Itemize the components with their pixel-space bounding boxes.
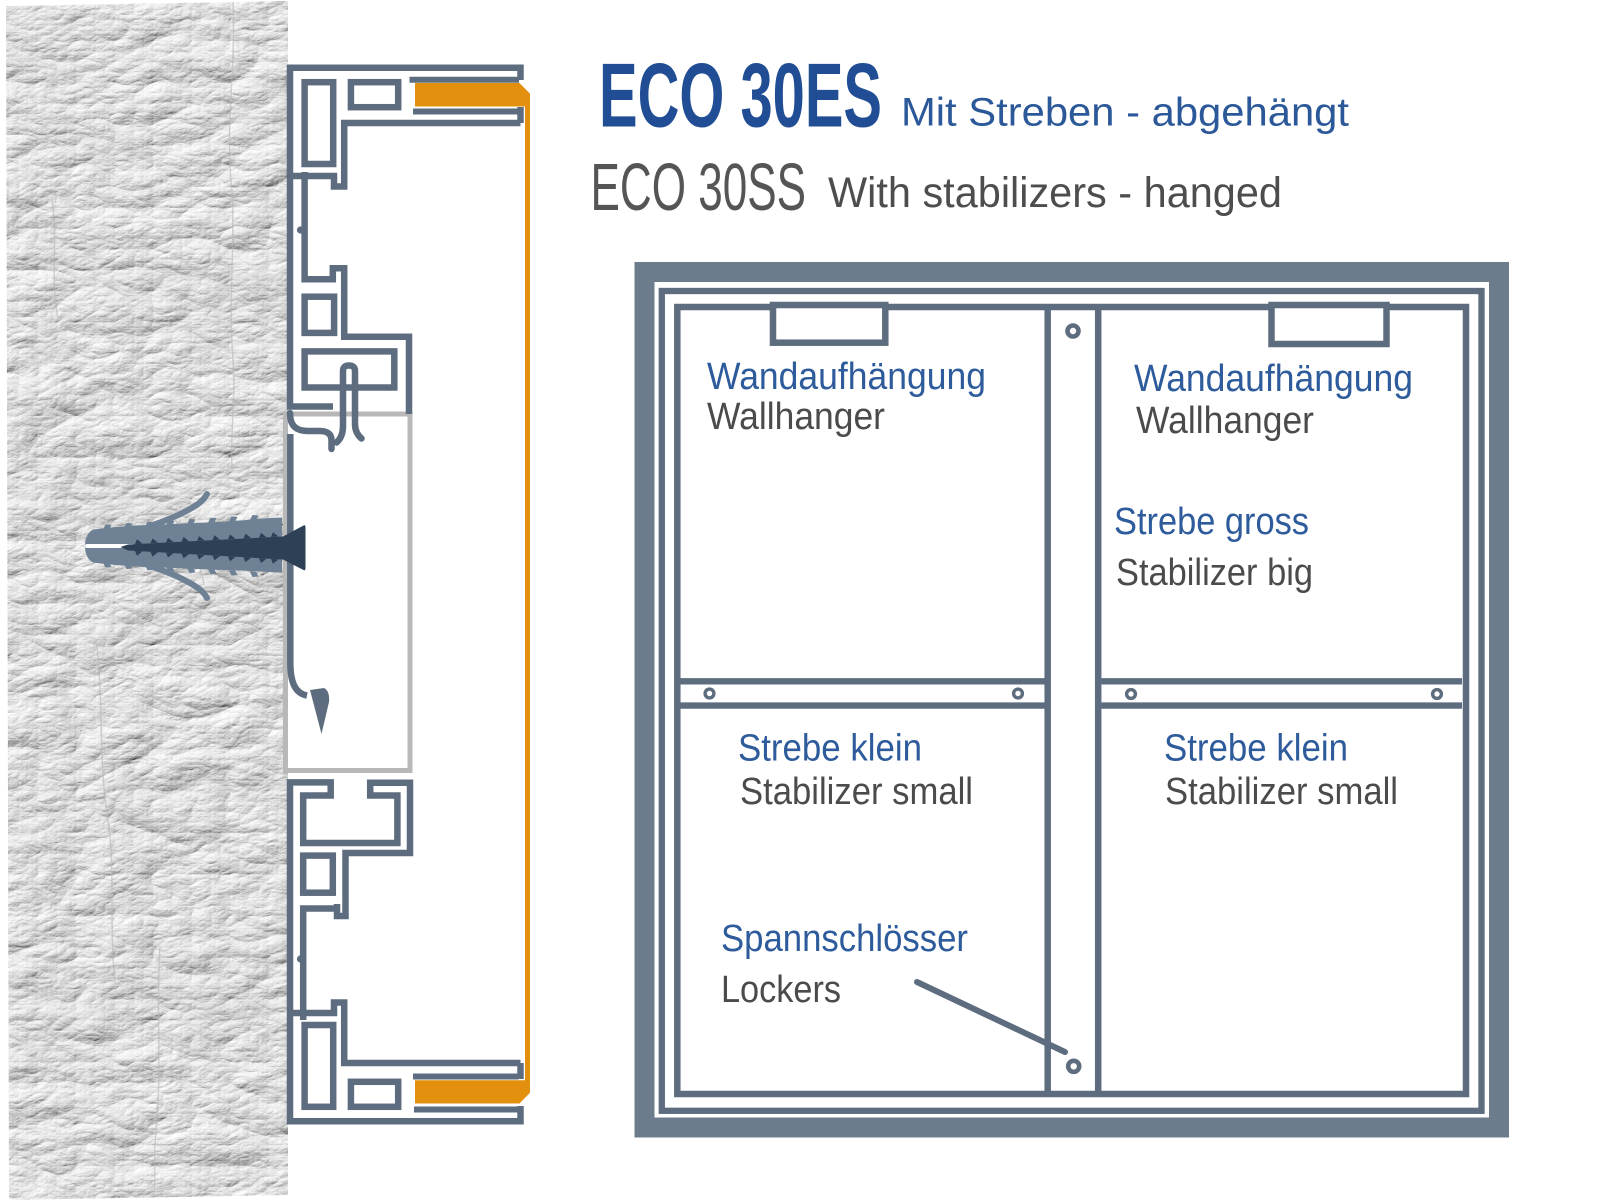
svg-text:Lockers: Lockers	[721, 969, 841, 1011]
svg-text:Stabilizer big: Stabilizer big	[1116, 552, 1313, 594]
svg-text:Spannschlösser: Spannschlösser	[721, 918, 968, 960]
svg-text:Wandaufhängung: Wandaufhängung	[707, 356, 986, 398]
svg-text:Wandaufhängung: Wandaufhängung	[1134, 358, 1413, 400]
svg-text:ECO 30ES: ECO 30ES	[599, 46, 882, 147]
svg-text:Wallhanger: Wallhanger	[1136, 400, 1314, 442]
svg-text:Mit Streben - abgehängt: Mit Streben - abgehängt	[901, 90, 1349, 134]
svg-text:Strebe klein: Strebe klein	[738, 728, 922, 770]
svg-text:Strebe gross: Strebe gross	[1114, 501, 1309, 543]
svg-text:Stabilizer small: Stabilizer small	[1165, 771, 1398, 813]
svg-text:Stabilizer small: Stabilizer small	[740, 771, 973, 813]
svg-text:With stabilizers - hanged: With stabilizers - hanged	[828, 169, 1282, 217]
svg-text:Wallhanger: Wallhanger	[707, 396, 885, 438]
svg-text:ECO 30SS: ECO 30SS	[591, 150, 807, 225]
svg-text:Strebe klein: Strebe klein	[1164, 728, 1348, 770]
